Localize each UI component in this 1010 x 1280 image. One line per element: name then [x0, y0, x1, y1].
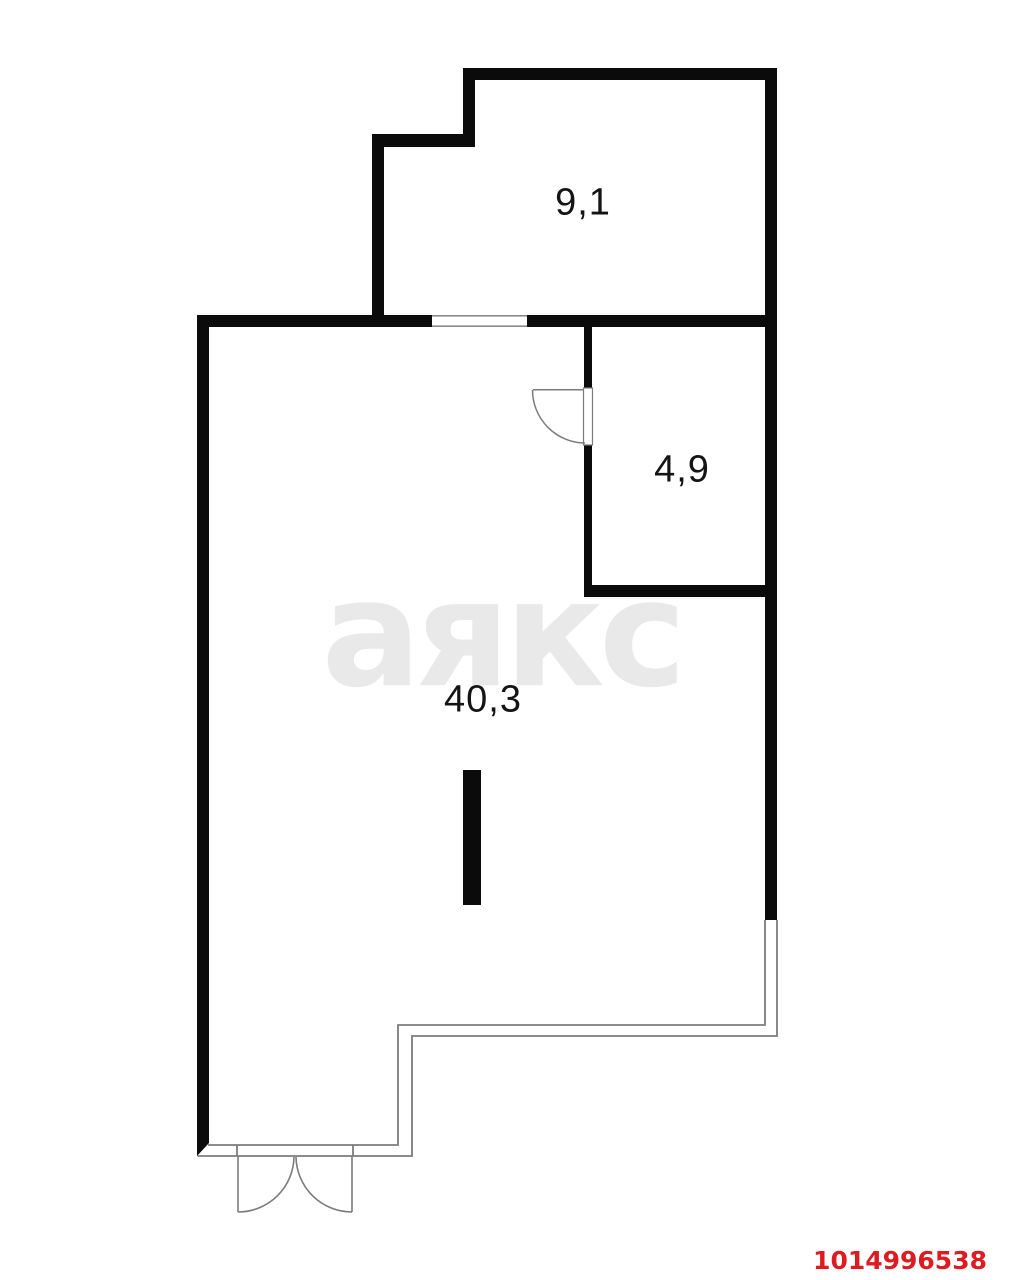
interior-door-opening [584, 388, 593, 445]
walls [197, 68, 777, 1156]
thin-boundary-inner [208, 920, 765, 1145]
room2-partition-upper [584, 325, 592, 388]
room1-left-wall [372, 134, 384, 327]
thin-boundary-outer [198, 920, 778, 1156]
interior-door-swing-arc [533, 390, 586, 443]
entrance-double-door [238, 1156, 352, 1212]
divider-window [432, 316, 527, 326]
room2-bottom-wall [584, 585, 777, 597]
thin-boundary-walls [198, 920, 778, 1156]
top-wall [463, 68, 777, 80]
room3-area-label: 40,3 [444, 679, 522, 722]
entrance-door-arc-right [296, 1157, 352, 1212]
right-wall [765, 68, 777, 920]
entrance-door-arc-left [238, 1157, 294, 1212]
room2-partition-lower [584, 445, 592, 597]
room1-area-label: 9,1 [555, 182, 611, 225]
floorplan-drawing [0, 0, 1010, 1280]
listing-id: 1014996538 [813, 1246, 987, 1275]
room1-step-wall [372, 134, 475, 147]
divider-wall-left-segment [197, 315, 432, 327]
room2-area-label: 4,9 [654, 449, 710, 492]
freestanding-wall-stub [463, 770, 481, 905]
left-wall [197, 315, 209, 1156]
divider-wall-right-segment [527, 315, 777, 327]
interior-door [533, 388, 593, 445]
floorplan-canvas: аякс [0, 0, 1010, 1280]
